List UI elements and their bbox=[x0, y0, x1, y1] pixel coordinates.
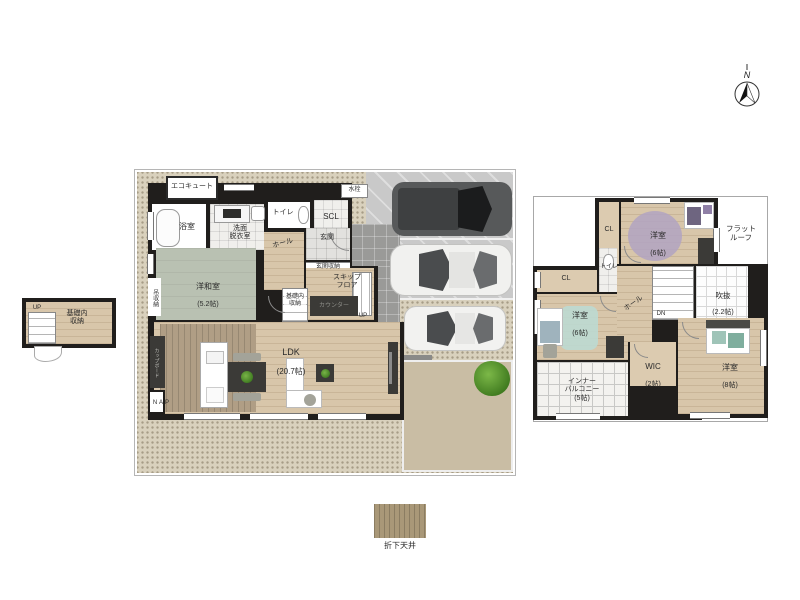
label-skip-floor: スキップ フロア bbox=[322, 274, 372, 291]
bed-right bbox=[706, 328, 750, 354]
label-washitsu-size: (5.2帖) bbox=[186, 301, 230, 309]
label-toilet-1f: トイレ bbox=[268, 209, 298, 217]
label-cupboard: カップボード bbox=[153, 340, 159, 386]
window-washitsu-west bbox=[147, 254, 154, 274]
bed-right-blanket-2 bbox=[728, 333, 744, 348]
label-void-name: 吹抜 bbox=[703, 291, 743, 300]
label-flat-roof: フラット ルーフ bbox=[718, 224, 764, 242]
car-compact-roof bbox=[455, 313, 475, 344]
window-bedroom-right-east bbox=[760, 330, 767, 366]
car-sedan bbox=[390, 244, 512, 296]
bed-top-pillow bbox=[703, 205, 712, 214]
legend-label: 折下天井 bbox=[366, 541, 434, 551]
car-compact-rear-glass bbox=[473, 313, 493, 344]
desk-left-bedroom bbox=[606, 336, 624, 358]
car-sedan-rear-glass bbox=[473, 251, 497, 289]
car-suv bbox=[392, 182, 512, 236]
bed-right-blanket-1 bbox=[712, 331, 726, 344]
floorplan-canvas: エコキュート 水栓 浴室 洗面 脱衣室 トイレ SCL ホール 玄関 玄関収納 … bbox=[0, 0, 800, 600]
garden-bush bbox=[474, 361, 510, 396]
vanity-sink bbox=[223, 209, 241, 218]
side-table-plant bbox=[321, 369, 330, 378]
label-bath: 浴室 bbox=[172, 222, 202, 232]
window-ldk-south-1 bbox=[184, 413, 240, 420]
tv-screen bbox=[389, 352, 392, 384]
label-cl-left: CL bbox=[556, 275, 576, 283]
car-sedan-windshield bbox=[419, 249, 453, 291]
car-suv-windshield bbox=[458, 186, 492, 232]
label-void: 吹抜 (2.2帖) bbox=[703, 281, 743, 327]
label-counter: カウンター bbox=[314, 303, 354, 310]
window-bath-west bbox=[147, 212, 154, 240]
label-bedroom-top-name: 洋室 bbox=[636, 231, 680, 241]
car-compact bbox=[404, 306, 506, 351]
window-bedroom-top-north bbox=[634, 197, 670, 204]
label-washroom: 洗面 脱衣室 bbox=[220, 225, 260, 242]
label-void-size: (2.2帖) bbox=[703, 309, 743, 317]
bed-left-blanket bbox=[540, 321, 560, 343]
compass-n-label: N bbox=[744, 70, 751, 80]
label-basement-storage: 基礎内 収納 bbox=[52, 310, 102, 327]
label-ecocute: エコキュート bbox=[167, 183, 217, 191]
window-ldk-south-2 bbox=[250, 413, 308, 420]
label-bedroom-left-size: (6帖) bbox=[558, 330, 602, 338]
label-cl-top: CL bbox=[599, 226, 619, 234]
vanity-unit bbox=[214, 205, 250, 223]
label-ldk-size: (20.7帖) bbox=[264, 367, 318, 377]
kitchen-island bbox=[200, 342, 228, 408]
label-bedroom-top: 洋室 (6帖) bbox=[636, 221, 680, 268]
tv-board bbox=[388, 342, 398, 394]
label-wic-name: WIC bbox=[631, 362, 675, 372]
dining-chairs-bottom bbox=[233, 393, 261, 401]
label-bedroom-left-name: 洋室 bbox=[558, 311, 602, 321]
desk-chair bbox=[304, 394, 316, 406]
label-pantry: P A N bbox=[152, 393, 170, 413]
label-hanging-storage: 吊収納 bbox=[151, 282, 158, 314]
kitchen-stove bbox=[206, 387, 224, 403]
label-ldk-name: LDK bbox=[264, 347, 318, 358]
label-basement-up: UP bbox=[30, 305, 44, 312]
dining-table-plant bbox=[241, 371, 253, 383]
label-washitsu: 洋和室 (5.2帖) bbox=[186, 272, 230, 319]
label-bedroom-left: 洋室 (6帖) bbox=[558, 301, 602, 348]
balcony-opening-south bbox=[556, 413, 600, 420]
label-bedroom-right-size: (8帖) bbox=[708, 382, 752, 390]
label-foundation-storage-1f: 基礎内 収納 bbox=[284, 294, 306, 307]
label-dn: DN bbox=[653, 311, 669, 318]
label-toilet-2f: トイレ bbox=[597, 264, 621, 271]
label-bedroom-right: 洋室 (8帖) bbox=[708, 353, 752, 400]
window-bedroom-right-south bbox=[690, 412, 730, 419]
kitchen-sink bbox=[206, 351, 224, 364]
bed-top-blanket bbox=[687, 207, 701, 225]
window-cl-left-west bbox=[534, 272, 541, 288]
desk-top-bedroom bbox=[698, 238, 714, 264]
label-wic: WIC (2帖) bbox=[631, 352, 675, 399]
label-balcony: インナー バルコニー (5帖) bbox=[550, 378, 614, 403]
washing-machine bbox=[251, 206, 265, 221]
label-entrance-storage: 玄関収納 bbox=[310, 264, 346, 271]
window-ldk-south-3 bbox=[318, 413, 366, 420]
label-washitsu-name: 洋和室 bbox=[186, 282, 230, 292]
label-entrance: 玄関 bbox=[312, 234, 342, 242]
label-water-tap: 水栓 bbox=[342, 187, 367, 194]
toilet-bowl-1f bbox=[298, 206, 309, 224]
window-bath-north bbox=[224, 184, 254, 191]
legend-swatch bbox=[374, 504, 426, 538]
label-ldk: LDK (20.7帖) bbox=[264, 337, 318, 386]
compass: N bbox=[728, 62, 766, 112]
dining-chairs-top bbox=[233, 353, 261, 361]
label-scl: SCL bbox=[316, 212, 346, 222]
car-compact-windshield bbox=[427, 311, 457, 346]
label-wic-size: (2帖) bbox=[631, 381, 675, 389]
chair-left-bedroom bbox=[543, 344, 557, 358]
label-bedroom-top-size: (6帖) bbox=[636, 250, 680, 258]
car-suv-roof bbox=[398, 188, 460, 230]
label-up-1f: UP bbox=[356, 313, 370, 320]
label-bedroom-right-name: 洋室 bbox=[708, 363, 752, 373]
bed-top bbox=[684, 202, 714, 229]
basement-stairs-landing bbox=[34, 346, 62, 362]
terrace-step bbox=[402, 355, 432, 360]
car-sedan-roof bbox=[449, 252, 475, 288]
